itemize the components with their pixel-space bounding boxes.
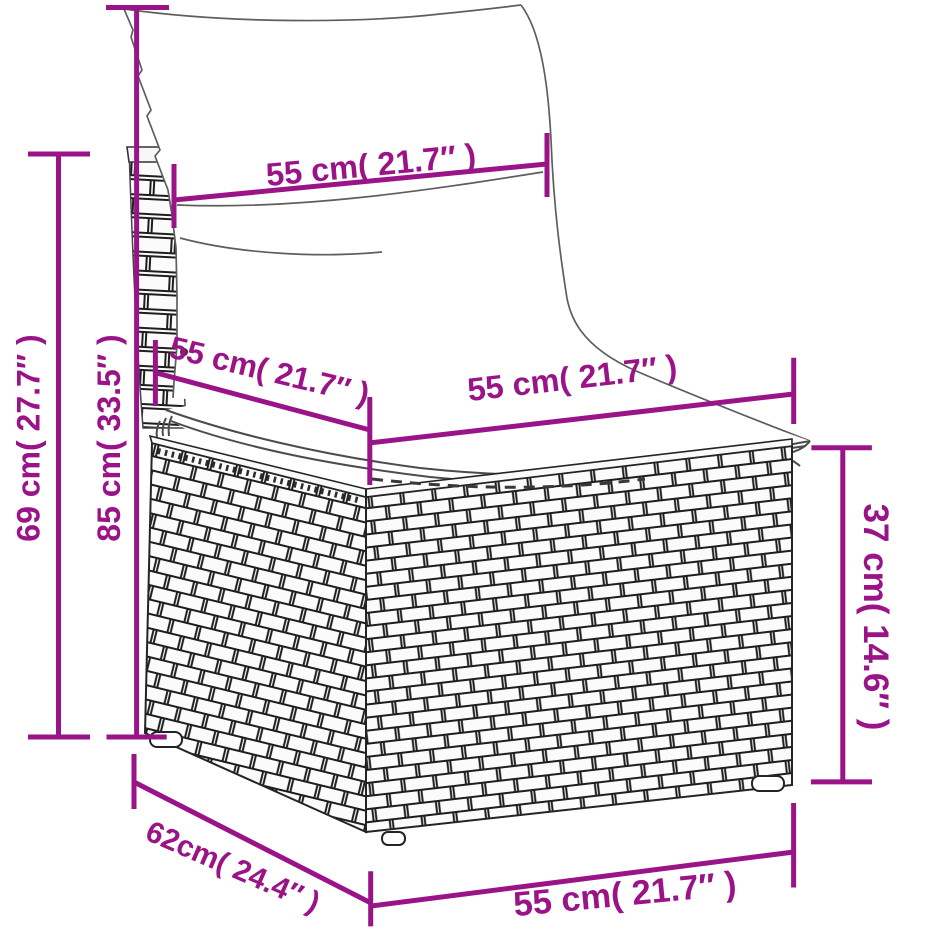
svg-text:69 cm( 27.7″ ): 69 cm( 27.7″ ) xyxy=(11,334,47,541)
svg-text:37 cm( 14.6″ ): 37 cm( 14.6″ ) xyxy=(856,504,895,731)
svg-text:85 cm( 33.5″ ): 85 cm( 33.5″ ) xyxy=(91,334,127,541)
